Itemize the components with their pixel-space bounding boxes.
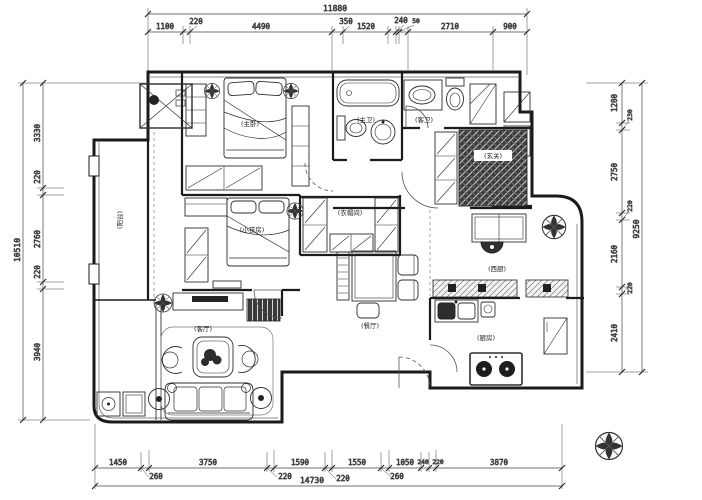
dim-left-0: 3330: [33, 123, 42, 142]
wall-niche-lower: [89, 264, 99, 284]
room-label-living-room: (客厅): [194, 324, 212, 333]
dim-extensions: [148, 8, 527, 75]
dining-furniture: [337, 251, 418, 318]
media-hatch-cabinet: [247, 299, 280, 321]
side-table-right: [251, 388, 272, 409]
sofa: [165, 383, 253, 420]
room-label-master-bath: (主卫): [357, 115, 375, 124]
doors: [254, 106, 457, 388]
washer: [97, 392, 120, 416]
dim-bottom-2: 3750: [199, 458, 218, 467]
dimension-chain-left: 10510 3330 220 2760 220 3940: [13, 80, 146, 423]
window-lines: [156, 302, 161, 420]
dim-left-4: 3940: [33, 342, 42, 361]
dining-chair-2: [398, 280, 418, 300]
fan-symbol-icon: [154, 294, 172, 312]
dim-bottom-1: 260: [149, 472, 163, 481]
dim-left-3: 220: [33, 265, 42, 279]
dim-top-3: 350: [339, 17, 353, 26]
dim-leaders: [190, 25, 414, 32]
dim-bottom-overall: 14730: [300, 476, 324, 485]
floor-plan-canvas: 11880 1100 220 4490 350 1520 240 50 2710…: [0, 0, 702, 500]
shower-cabinet-marks: [470, 84, 496, 124]
dim-extensions: [95, 424, 562, 489]
dim-top-6: 50: [412, 18, 420, 25]
toilet-guest: [446, 78, 464, 110]
kids-room-furniture: [185, 198, 289, 288]
dim-top-7: 2710: [441, 22, 460, 31]
room-label-balcony: (阳台): [115, 211, 124, 229]
dim-top-0: 1100: [156, 22, 175, 31]
small-appliance: [481, 302, 495, 317]
side-table-left: [149, 389, 170, 410]
master-bed: [224, 78, 286, 158]
dim-left-1: 220: [33, 170, 42, 184]
room-label-west-kitchen: (西厨): [488, 265, 506, 273]
balcony-cabinet: [123, 392, 145, 416]
dim-right-6: 2410: [610, 323, 619, 342]
dim-top-5: 240: [394, 16, 408, 25]
dim-lines: [95, 468, 562, 486]
dim-top-overall: 11880: [323, 4, 347, 13]
fridge: [544, 318, 567, 354]
dim-bottom-9: 240: [417, 459, 429, 466]
entry-tile-floor: [459, 130, 527, 206]
balcony-bottom-furniture: [97, 392, 145, 416]
wall-niche-upper: [89, 156, 99, 176]
dim-right-overall: 9250: [632, 219, 641, 238]
dim-right-2: 2750: [610, 162, 619, 181]
room-label-kids-room: (小孩房): [240, 225, 265, 234]
dim-right-1: 230: [627, 109, 634, 121]
bedroom-wardrobe-marks: [188, 166, 260, 190]
dim-bottom-4: 1590: [291, 458, 310, 467]
compass-symbol-icon: [596, 433, 623, 460]
dim-ticks: [92, 465, 565, 489]
dim-top-4: 1520: [357, 22, 376, 31]
dimension-chain-right: 9250 1280 230 2750 220 2160 220 2410: [586, 80, 648, 375]
dimension-chain-bottom: 14730 1450 260 3750 220 1590 220 1550 26…: [92, 424, 565, 489]
dining-table: [352, 251, 396, 301]
dim-top-1: 220: [189, 17, 203, 26]
floor-plan-page: 11880 1100 220 4490 350 1520 240 50 2710…: [0, 0, 702, 500]
rug: [161, 327, 273, 415]
room-label-entry: (玄关): [484, 151, 502, 160]
dim-right-4: 2160: [610, 244, 619, 263]
dining-chair-3: [357, 303, 379, 318]
dim-lines: [148, 14, 527, 32]
dim-bottom-0: 1450: [109, 458, 128, 467]
dim-left-2: 2760: [33, 229, 42, 248]
master-bathroom-fixtures: [337, 80, 399, 144]
armchair-left: [162, 347, 182, 374]
dim-left-overall: 10510: [13, 238, 22, 262]
dim-bottom-10: 220: [432, 459, 444, 466]
sideboard-counter-1: [433, 280, 517, 297]
desk: [185, 198, 227, 216]
bathtub: [337, 80, 399, 106]
dining-chair-1: [398, 255, 418, 275]
dim-bottom-8: 1050: [396, 458, 415, 467]
fan-symbol-icon: [542, 215, 565, 238]
kitchen-fixtures: [435, 300, 567, 385]
coffee-table: [193, 337, 233, 377]
dim-bottom-3: 220: [278, 472, 292, 481]
room-label-guest-bath: (客卫): [415, 115, 433, 124]
fan-symbol-icon: [287, 203, 303, 219]
bedroom-dresser-lines: [292, 126, 309, 166]
tv: [192, 296, 228, 302]
hall-door-arc: [402, 172, 438, 208]
room-label-master-bedroom: (主卧): [241, 119, 259, 128]
dim-bottom-11: 3870: [490, 458, 509, 467]
oval-sink-inner: [413, 90, 431, 101]
dim-top-8: 900: [503, 22, 517, 31]
cooktop: [470, 353, 522, 385]
room-label-kitchen: (厨房): [477, 333, 495, 342]
dim-top-2: 4490: [252, 22, 271, 31]
dim-right-5: 220: [627, 282, 634, 294]
living-room-furniture: [149, 293, 281, 420]
room-label-dining-room: (餐厅): [361, 321, 379, 330]
dim-bottom-6: 1550: [348, 458, 367, 467]
dim-right-0: 1280: [610, 93, 619, 112]
kitchen-sink: [435, 300, 478, 322]
fan-symbol-icon: [283, 83, 298, 98]
bench: [213, 281, 241, 288]
armchair-right: [238, 346, 258, 373]
closet-wardrobes: [303, 198, 398, 252]
entry-area: (玄关): [435, 130, 527, 206]
kitchen-door: [430, 345, 457, 372]
dimension-chain-top: 11880 1100 220 4490 350 1520 240 50 2710…: [145, 4, 530, 75]
dim-right-3: 220: [627, 200, 634, 212]
vanity-counter: [404, 80, 442, 110]
room-label-closet: (衣帽间): [338, 208, 363, 217]
dim-bottom-7: 260: [390, 472, 404, 481]
bedroom-shelf-lines: [186, 97, 206, 123]
dim-bottom-5: 220: [336, 474, 350, 483]
fan-symbol-icon: [204, 83, 219, 98]
